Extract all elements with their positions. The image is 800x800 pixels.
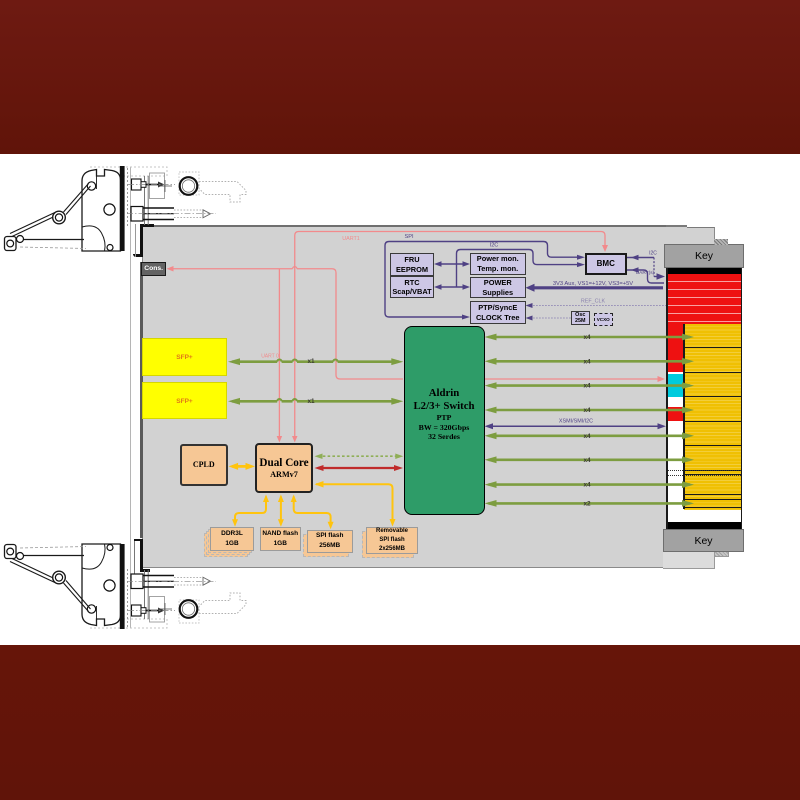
svg-text:SPI: SPI <box>404 234 413 240</box>
svg-text:x2: x2 <box>583 500 591 507</box>
svg-text:REF_CLK: REF_CLK <box>581 299 606 305</box>
svg-text:x4: x4 <box>583 407 591 414</box>
svg-text:x4: x4 <box>583 457 591 464</box>
svg-text:I2C: I2C <box>649 251 657 257</box>
svg-text:x4: x4 <box>583 383 591 390</box>
svg-text:x1: x1 <box>307 398 315 405</box>
svg-text:XSMI/SMI/I2C: XSMI/SMI/I2C <box>559 419 593 425</box>
svg-text:UART1: UART1 <box>342 236 360 242</box>
svg-text:x1: x1 <box>307 358 315 365</box>
svg-text:x4: x4 <box>583 334 591 341</box>
svg-text:I2C: I2C <box>490 243 499 249</box>
svg-text:x4: x4 <box>583 482 591 489</box>
svg-text:UART(s): UART(s) <box>636 270 655 276</box>
svg-text:3V3 Aux, VS1=+12V, VS3=+5V: 3V3 Aux, VS1=+12V, VS3=+5V <box>553 281 633 287</box>
svg-text:x4: x4 <box>583 433 591 440</box>
svg-text:x4: x4 <box>583 358 591 365</box>
svg-text:UART 0: UART 0 <box>261 354 279 360</box>
